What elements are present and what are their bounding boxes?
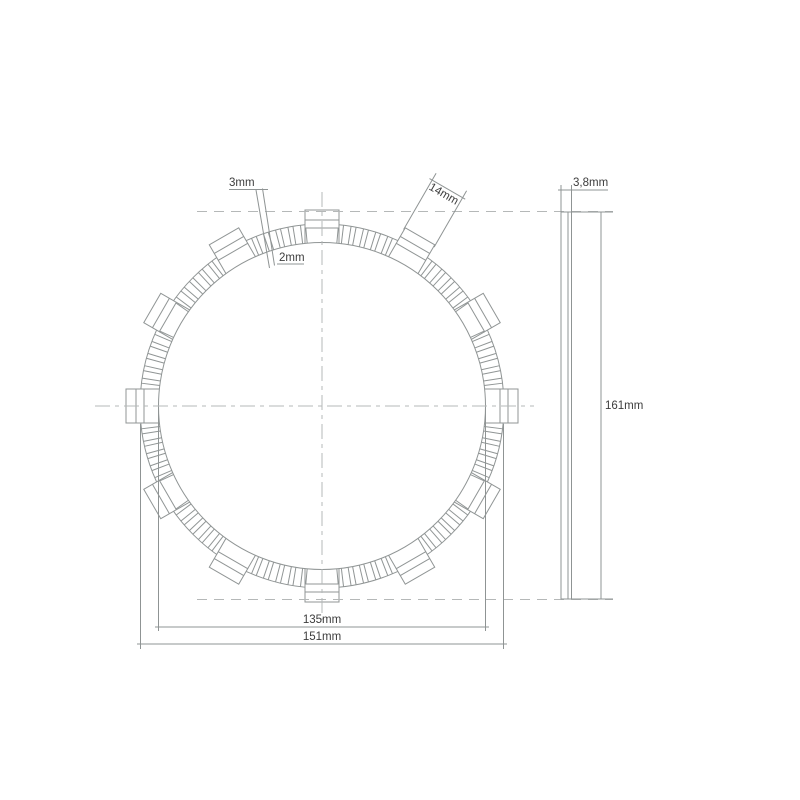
label-tab-width: 14mm	[427, 181, 461, 207]
groove-leader-line-left	[256, 190, 270, 268]
construction-lines	[95, 192, 613, 620]
drive-tab	[454, 293, 500, 339]
drive-tab	[144, 293, 190, 339]
technical-drawing-canvas: 3mm 2mm 14mm 135mm 151mm 3,8mm 161mm	[0, 0, 800, 800]
drive-tab	[454, 473, 500, 519]
dim-14mm-extension-left	[404, 173, 437, 229]
label-groove-outer: 3mm	[229, 177, 255, 189]
side-view-plate	[561, 212, 572, 599]
label-thickness: 3,8mm	[573, 177, 608, 189]
dimension-labels: 3mm 2mm 14mm 135mm 151mm 3,8mm 161mm	[229, 177, 643, 643]
label-groove-inner: 2mm	[279, 252, 305, 264]
groove-leader-line-right	[263, 189, 275, 266]
drive-tab	[144, 473, 190, 519]
drawing-sheet: 3mm 2mm 14mm 135mm 151mm 3,8mm 161mm	[0, 0, 800, 800]
label-outer-diameter: 151mm	[303, 631, 341, 643]
label-overall-diameter: 161mm	[605, 400, 643, 412]
label-inner-diameter: 135mm	[303, 614, 341, 626]
